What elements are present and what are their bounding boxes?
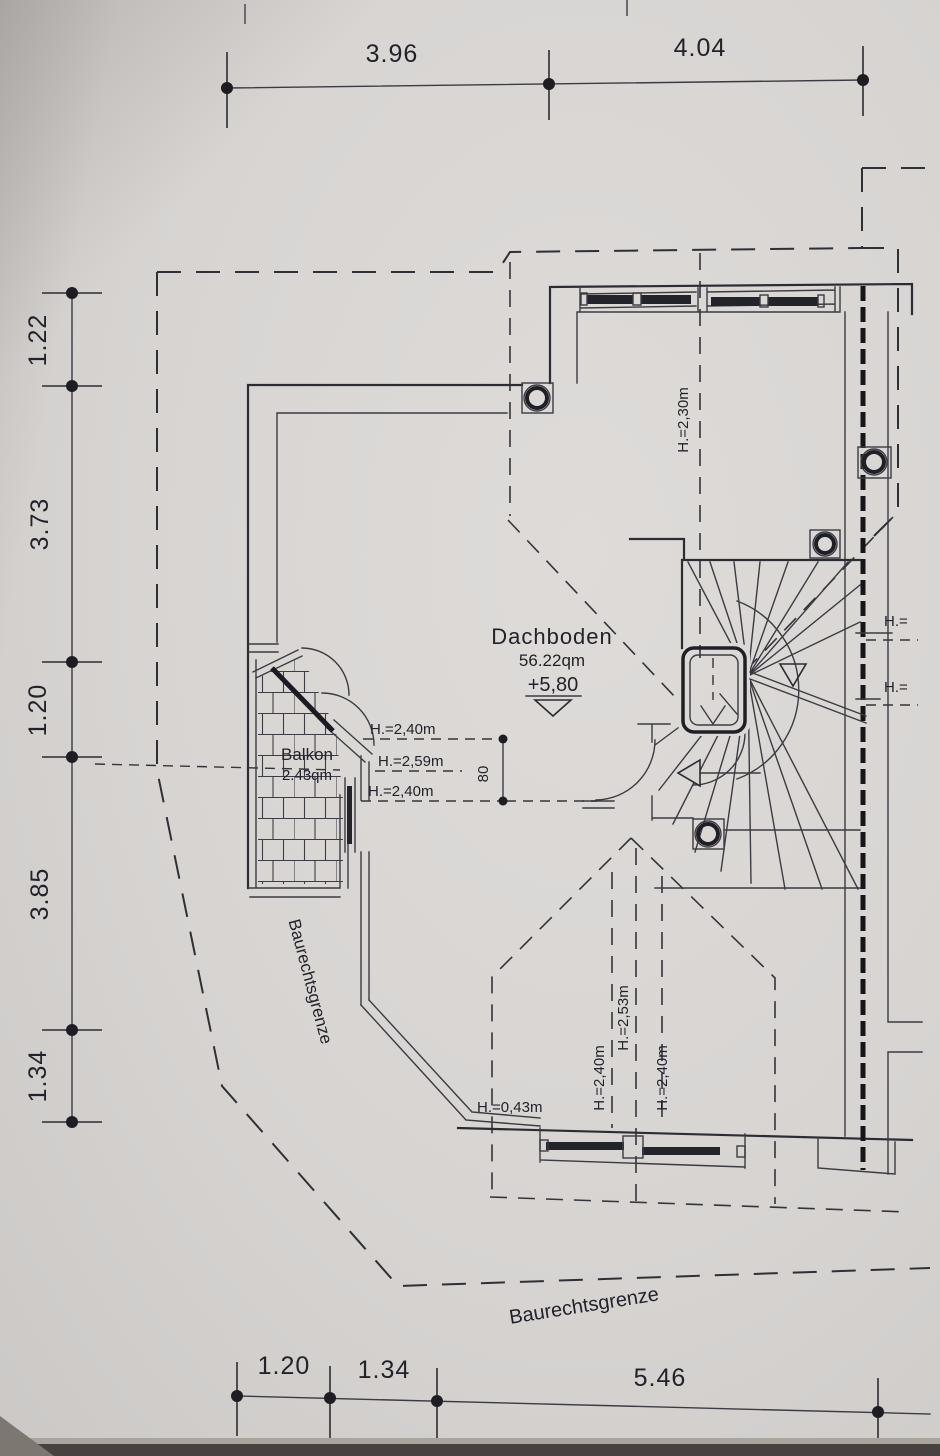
dimension-line-top: 3.96 4.04 <box>221 34 869 128</box>
height-label: H.=2,40m <box>591 1045 608 1110</box>
height-label: H.=2,40m <box>370 721 435 738</box>
stair-opening-dimension: 80 <box>475 766 492 783</box>
room-name-dachboden: Dachboden <box>491 624 613 649</box>
door-swing-arc <box>596 740 655 800</box>
height-label: H.=0,43m <box>477 1099 542 1116</box>
dimension-label: 1.20 <box>258 1352 311 1380</box>
boundary-labels: Baurechtsgrenze Baurechtsgrenze <box>285 917 661 1329</box>
dormer-windows-top <box>581 293 824 307</box>
height-label: H.=2,53m <box>615 985 632 1050</box>
room-level-dachboden: +5,80 <box>528 674 579 696</box>
dormer-window-bottom <box>540 1136 745 1158</box>
dimension-label: 3.73 <box>26 498 54 551</box>
height-label: H.=2,59m <box>378 753 443 770</box>
boundary-label-left: Baurechtsgrenze <box>285 917 337 1046</box>
height-labels: H.=2,40m H.=2,59m H.=2,40m H.=2,30m H.=2… <box>368 387 908 1116</box>
walls <box>248 284 922 1174</box>
room-area-dachboden: 56.22qm <box>519 651 585 670</box>
scan-fold-marks <box>245 0 627 24</box>
chimney-symbol <box>858 447 891 478</box>
photo-edge <box>0 1416 940 1456</box>
floorplan-drawing: 3.96 4.04 1.22 3.73 1.20 3.85 1.34 1.20 … <box>0 0 940 1456</box>
dimension-label: 5.46 <box>634 1364 687 1392</box>
boundary-label-bottom: Baurechtsgrenze <box>508 1283 661 1328</box>
dimension-label: 1.22 <box>24 314 52 367</box>
height-label: H.=2,30m <box>675 387 692 452</box>
dimension-label: 3.85 <box>26 868 54 921</box>
stair-handrail <box>750 672 866 723</box>
room-name-balkon: Balkon <box>281 745 333 764</box>
dimension-label: 1.34 <box>24 1050 52 1103</box>
stair-entry-arrow <box>678 760 700 786</box>
dimension-label: 4.04 <box>674 34 727 62</box>
height-label: H.=2,40m <box>368 783 433 800</box>
height-label-cut: H.= <box>884 613 908 630</box>
window-mullion-post <box>623 1136 643 1158</box>
dimension-line-bottom: 1.20 1.34 5.46 <box>231 1352 930 1450</box>
dimension-label: 1.20 <box>24 684 52 737</box>
chimney-symbols <box>522 383 891 849</box>
height-label: H.=2,40m <box>654 1045 671 1110</box>
chimney-symbol <box>522 383 553 413</box>
floorplan-scan: 3.96 4.04 1.22 3.73 1.20 3.85 1.34 1.20 … <box>0 0 940 1456</box>
room-labels: Dachboden 56.22qm +5,80 Balkon 2.43qm <box>281 624 613 784</box>
room-area-balkon: 2.43qm <box>282 767 332 784</box>
balcony-window-glass <box>347 786 352 844</box>
chimney-symbol <box>810 530 840 558</box>
stair-direction-marker <box>780 664 806 686</box>
dimension-label: 3.96 <box>366 40 419 68</box>
level-marker-icon <box>535 700 571 716</box>
dimension-line-left: 1.22 3.73 1.20 3.85 1.34 <box>24 287 102 1128</box>
height-label-cut: H.= <box>884 679 908 696</box>
dimension-label: 1.34 <box>358 1356 411 1384</box>
